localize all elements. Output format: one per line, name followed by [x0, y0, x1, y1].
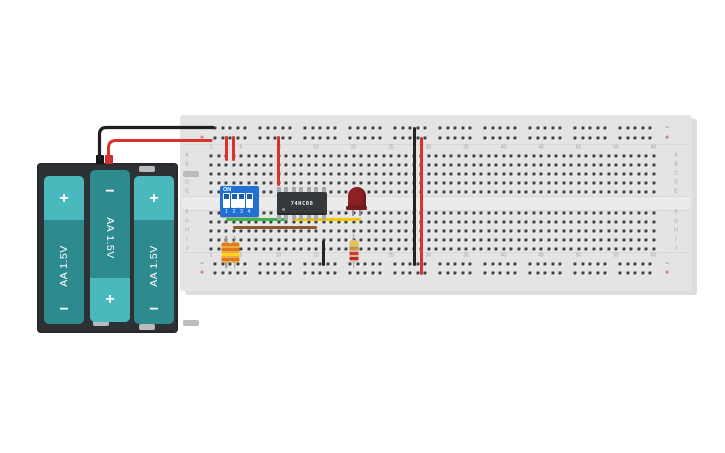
breadboard-hole[interactable] [469, 137, 472, 140]
breadboard-hole[interactable] [529, 137, 532, 140]
breadboard-hole[interactable] [379, 127, 382, 130]
breadboard-hole[interactable] [495, 155, 498, 158]
breadboard-hole[interactable] [349, 272, 352, 275]
breadboard-hole[interactable] [532, 212, 535, 215]
breadboard-hole[interactable] [311, 137, 314, 140]
breadboard-hole[interactable] [277, 248, 280, 251]
breadboard-hole[interactable] [562, 230, 565, 233]
breadboard-hole[interactable] [652, 212, 655, 215]
breadboard-hole[interactable] [544, 137, 547, 140]
breadboard-hole[interactable] [600, 221, 603, 224]
breadboard-hole[interactable] [499, 263, 502, 266]
breadboard-hole[interactable] [562, 182, 565, 185]
breadboard-hole[interactable] [375, 248, 378, 251]
breadboard-hole[interactable] [574, 263, 577, 266]
breadboard-hole[interactable] [570, 248, 573, 251]
breadboard-hole[interactable] [427, 239, 430, 242]
breadboard-hole[interactable] [390, 173, 393, 176]
breadboard-hole[interactable] [472, 164, 475, 167]
breadboard-hole[interactable] [307, 230, 310, 233]
breadboard-hole[interactable] [337, 248, 340, 251]
breadboard-hole[interactable] [397, 155, 400, 158]
breadboard-hole[interactable] [487, 248, 490, 251]
breadboard-hole[interactable] [364, 272, 367, 275]
jumper-brown-switch-to-ic[interactable] [233, 226, 317, 229]
breadboard-hole[interactable] [244, 263, 247, 266]
breadboard-hole[interactable] [592, 164, 595, 167]
breadboard-hole[interactable] [562, 212, 565, 215]
breadboard-hole[interactable] [506, 137, 509, 140]
breadboard-hole[interactable] [555, 248, 558, 251]
breadboard-hole[interactable] [409, 127, 412, 130]
breadboard-hole[interactable] [457, 230, 460, 233]
resistor-pulldown-2[interactable] [230, 236, 239, 268]
breadboard-hole[interactable] [427, 182, 430, 185]
breadboard-hole[interactable] [454, 272, 457, 275]
breadboard-hole[interactable] [517, 173, 520, 176]
breadboard-hole[interactable] [427, 221, 430, 224]
jumper-red-power-col3[interactable] [225, 136, 228, 161]
breadboard-hole[interactable] [581, 272, 584, 275]
breadboard-hole[interactable] [330, 248, 333, 251]
breadboard-hole[interactable] [217, 221, 220, 224]
breadboard-hole[interactable] [442, 221, 445, 224]
breadboard-hole[interactable] [600, 239, 603, 242]
breadboard-hole[interactable] [352, 173, 355, 176]
breadboard-hole[interactable] [465, 239, 468, 242]
breadboard-hole[interactable] [461, 263, 464, 266]
breadboard-hole[interactable] [600, 155, 603, 158]
breadboard-hole[interactable] [300, 230, 303, 233]
breadboard-hole[interactable] [547, 191, 550, 194]
breadboard-hole[interactable] [626, 137, 629, 140]
breadboard-hole[interactable] [589, 127, 592, 130]
breadboard-hole[interactable] [645, 230, 648, 233]
breadboard-hole[interactable] [266, 137, 269, 140]
breadboard-hole[interactable] [484, 263, 487, 266]
breadboard-hole[interactable] [390, 155, 393, 158]
breadboard-hole[interactable] [559, 127, 562, 130]
breadboard-hole[interactable] [600, 248, 603, 251]
breadboard-hole[interactable] [532, 164, 535, 167]
breadboard-hole[interactable] [247, 173, 250, 176]
breadboard-hole[interactable] [232, 164, 235, 167]
breadboard-hole[interactable] [547, 212, 550, 215]
breadboard-hole[interactable] [364, 263, 367, 266]
breadboard-hole[interactable] [375, 239, 378, 242]
breadboard-hole[interactable] [589, 263, 592, 266]
breadboard-hole[interactable] [514, 127, 517, 130]
breadboard-hole[interactable] [581, 137, 584, 140]
breadboard-hole[interactable] [281, 137, 284, 140]
breadboard-hole[interactable] [330, 164, 333, 167]
breadboard-hole[interactable] [450, 221, 453, 224]
breadboard-hole[interactable] [551, 137, 554, 140]
breadboard-hole[interactable] [604, 127, 607, 130]
breadboard-hole[interactable] [547, 230, 550, 233]
breadboard-hole[interactable] [645, 173, 648, 176]
breadboard-hole[interactable] [375, 173, 378, 176]
breadboard-hole[interactable] [371, 127, 374, 130]
breadboard-hole[interactable] [277, 239, 280, 242]
breadboard-hole[interactable] [390, 191, 393, 194]
breadboard-hole[interactable] [300, 173, 303, 176]
breadboard-hole[interactable] [285, 248, 288, 251]
breadboard-hole[interactable] [604, 272, 607, 275]
breadboard-hole[interactable] [450, 191, 453, 194]
breadboard-hole[interactable] [281, 127, 284, 130]
breadboard-hole[interactable] [495, 164, 498, 167]
breadboard-hole[interactable] [472, 230, 475, 233]
breadboard-hole[interactable] [300, 182, 303, 185]
breadboard-hole[interactable] [405, 191, 408, 194]
breadboard-hole[interactable] [514, 137, 517, 140]
breadboard-hole[interactable] [487, 182, 490, 185]
breadboard-hole[interactable] [472, 155, 475, 158]
breadboard-hole[interactable] [525, 221, 528, 224]
breadboard-hole[interactable] [315, 173, 318, 176]
rail-bridge-black[interactable] [413, 127, 416, 266]
breadboard-hole[interactable] [607, 155, 610, 158]
breadboard-hole[interactable] [472, 239, 475, 242]
breadboard-hole[interactable] [570, 164, 573, 167]
breadboard-hole[interactable] [225, 230, 228, 233]
breadboard-hole[interactable] [401, 137, 404, 140]
breadboard-hole[interactable] [634, 263, 637, 266]
breadboard-hole[interactable] [637, 230, 640, 233]
breadboard-hole[interactable] [622, 230, 625, 233]
breadboard-hole[interactable] [367, 191, 370, 194]
breadboard-hole[interactable] [495, 221, 498, 224]
breadboard-hole[interactable] [536, 137, 539, 140]
breadboard-hole[interactable] [394, 263, 397, 266]
breadboard-hole[interactable] [266, 127, 269, 130]
breadboard-hole[interactable] [484, 127, 487, 130]
breadboard-hole[interactable] [210, 173, 213, 176]
breadboard-hole[interactable] [236, 272, 239, 275]
breadboard-hole[interactable] [641, 127, 644, 130]
breadboard-hole[interactable] [596, 263, 599, 266]
breadboard-hole[interactable] [510, 212, 513, 215]
breadboard-hole[interactable] [446, 127, 449, 130]
breadboard-hole[interactable] [502, 230, 505, 233]
breadboard-hole[interactable] [244, 272, 247, 275]
breadboard-hole[interactable] [607, 182, 610, 185]
breadboard-hole[interactable] [570, 239, 573, 242]
breadboard-hole[interactable] [210, 182, 213, 185]
breadboard-hole[interactable] [652, 248, 655, 251]
breadboard-hole[interactable] [622, 164, 625, 167]
breadboard-hole[interactable] [607, 212, 610, 215]
breadboard-hole[interactable] [457, 191, 460, 194]
breadboard-hole[interactable] [540, 173, 543, 176]
breadboard-hole[interactable] [270, 239, 273, 242]
breadboard-hole[interactable] [457, 212, 460, 215]
breadboard-hole[interactable] [652, 182, 655, 185]
dip-switch-knob[interactable] [232, 199, 237, 207]
rail-bridge-red[interactable] [420, 137, 423, 275]
breadboard-hole[interactable] [424, 263, 427, 266]
breadboard-hole[interactable] [247, 239, 250, 242]
breadboard-hole[interactable] [626, 263, 629, 266]
breadboard-hole[interactable] [532, 230, 535, 233]
breadboard-hole[interactable] [356, 272, 359, 275]
breadboard-hole[interactable] [607, 248, 610, 251]
breadboard-hole[interactable] [360, 182, 363, 185]
breadboard-hole[interactable] [409, 137, 412, 140]
breadboard-hole[interactable] [285, 155, 288, 158]
breadboard-hole[interactable] [255, 182, 258, 185]
breadboard-hole[interactable] [555, 221, 558, 224]
breadboard-hole[interactable] [457, 239, 460, 242]
breadboard-hole[interactable] [487, 155, 490, 158]
breadboard-hole[interactable] [397, 182, 400, 185]
breadboard-hole[interactable] [214, 272, 217, 275]
breadboard-hole[interactable] [405, 182, 408, 185]
breadboard-hole[interactable] [604, 137, 607, 140]
breadboard-hole[interactable] [525, 164, 528, 167]
breadboard-hole[interactable] [480, 248, 483, 251]
breadboard-hole[interactable] [382, 212, 385, 215]
breadboard-hole[interactable] [607, 173, 610, 176]
breadboard-hole[interactable] [379, 272, 382, 275]
breadboard-hole[interactable] [502, 221, 505, 224]
breadboard-hole[interactable] [416, 272, 419, 275]
breadboard-hole[interactable] [562, 221, 565, 224]
breadboard-hole[interactable] [619, 127, 622, 130]
breadboard-hole[interactable] [352, 155, 355, 158]
breadboard-hole[interactable] [390, 164, 393, 167]
breadboard-hole[interactable] [427, 191, 430, 194]
breadboard-hole[interactable] [551, 263, 554, 266]
breadboard-hole[interactable] [641, 263, 644, 266]
breadboard-hole[interactable] [607, 191, 610, 194]
breadboard-hole[interactable] [401, 263, 404, 266]
breadboard-hole[interactable] [409, 263, 412, 266]
breadboard-hole[interactable] [480, 155, 483, 158]
breadboard-hole[interactable] [315, 164, 318, 167]
breadboard-hole[interactable] [450, 173, 453, 176]
breadboard-hole[interactable] [615, 155, 618, 158]
breadboard-hole[interactable] [270, 173, 273, 176]
breadboard-hole[interactable] [435, 164, 438, 167]
breadboard-hole[interactable] [300, 248, 303, 251]
breadboard-hole[interactable] [262, 164, 265, 167]
breadboard-hole[interactable] [270, 191, 273, 194]
breadboard-hole[interactable] [345, 164, 348, 167]
breadboard-hole[interactable] [585, 230, 588, 233]
breadboard-hole[interactable] [217, 248, 220, 251]
breadboard-hole[interactable] [630, 239, 633, 242]
breadboard-hole[interactable] [607, 221, 610, 224]
breadboard-hole[interactable] [465, 155, 468, 158]
breadboard-hole[interactable] [360, 173, 363, 176]
breadboard-hole[interactable] [592, 230, 595, 233]
breadboard-hole[interactable] [547, 155, 550, 158]
breadboard-hole[interactable] [446, 272, 449, 275]
breadboard-hole[interactable] [514, 263, 517, 266]
breadboard-hole[interactable] [262, 248, 265, 251]
breadboard-hole[interactable] [540, 221, 543, 224]
breadboard-hole[interactable] [435, 173, 438, 176]
breadboard-hole[interactable] [304, 263, 307, 266]
breadboard-hole[interactable] [637, 182, 640, 185]
breadboard-hole[interactable] [322, 230, 325, 233]
breadboard-hole[interactable] [544, 127, 547, 130]
breadboard-hole[interactable] [367, 173, 370, 176]
breadboard-hole[interactable] [232, 173, 235, 176]
jumper-red-ic-vcc[interactable] [277, 136, 280, 186]
breadboard-hole[interactable] [394, 272, 397, 275]
breadboard-hole[interactable] [435, 230, 438, 233]
breadboard-hole[interactable] [495, 248, 498, 251]
breadboard-hole[interactable] [547, 239, 550, 242]
breadboard-hole[interactable] [229, 127, 232, 130]
dip-switch-slider-1[interactable] [223, 193, 230, 208]
breadboard-hole[interactable] [469, 127, 472, 130]
breadboard-hole[interactable] [487, 191, 490, 194]
breadboard-hole[interactable] [450, 164, 453, 167]
breadboard-hole[interactable] [405, 164, 408, 167]
breadboard-hole[interactable] [315, 182, 318, 185]
breadboard-hole[interactable] [637, 173, 640, 176]
breadboard-hole[interactable] [435, 182, 438, 185]
breadboard-hole[interactable] [525, 212, 528, 215]
breadboard-hole[interactable] [240, 248, 243, 251]
breadboard-hole[interactable] [334, 272, 337, 275]
breadboard-hole[interactable] [465, 191, 468, 194]
breadboard-hole[interactable] [495, 212, 498, 215]
breadboard-hole[interactable] [581, 127, 584, 130]
breadboard-hole[interactable] [592, 191, 595, 194]
breadboard-hole[interactable] [491, 127, 494, 130]
breadboard-hole[interactable] [577, 248, 580, 251]
breadboard-hole[interactable] [630, 248, 633, 251]
breadboard-hole[interactable] [585, 248, 588, 251]
breadboard-hole[interactable] [270, 248, 273, 251]
breadboard-hole[interactable] [450, 239, 453, 242]
breadboard-hole[interactable] [315, 239, 318, 242]
breadboard-hole[interactable] [427, 155, 430, 158]
breadboard-hole[interactable] [427, 164, 430, 167]
breadboard-hole[interactable] [480, 164, 483, 167]
breadboard-hole[interactable] [352, 230, 355, 233]
breadboard-hole[interactable] [427, 230, 430, 233]
breadboard-hole[interactable] [255, 230, 258, 233]
breadboard-hole[interactable] [600, 182, 603, 185]
breadboard-hole[interactable] [495, 191, 498, 194]
breadboard-hole[interactable] [375, 221, 378, 224]
breadboard-hole[interactable] [405, 239, 408, 242]
breadboard-hole[interactable] [544, 272, 547, 275]
breadboard-hole[interactable] [326, 127, 329, 130]
breadboard-hole[interactable] [555, 182, 558, 185]
breadboard-hole[interactable] [292, 239, 295, 242]
breadboard-hole[interactable] [585, 239, 588, 242]
breadboard-hole[interactable] [442, 212, 445, 215]
breadboard-hole[interactable] [292, 248, 295, 251]
breadboard-hole[interactable] [592, 155, 595, 158]
breadboard-hole[interactable] [225, 164, 228, 167]
breadboard-hole[interactable] [472, 248, 475, 251]
breadboard-hole[interactable] [390, 230, 393, 233]
breadboard-hole[interactable] [270, 155, 273, 158]
breadboard-hole[interactable] [240, 239, 243, 242]
breadboard-hole[interactable] [502, 173, 505, 176]
breadboard-hole[interactable] [592, 173, 595, 176]
breadboard-hole[interactable] [319, 272, 322, 275]
breadboard-hole[interactable] [506, 127, 509, 130]
breadboard-hole[interactable] [637, 248, 640, 251]
breadboard-hole[interactable] [397, 239, 400, 242]
breadboard-hole[interactable] [540, 230, 543, 233]
breadboard-hole[interactable] [405, 212, 408, 215]
breadboard-hole[interactable] [405, 230, 408, 233]
breadboard-hole[interactable] [304, 272, 307, 275]
breadboard-hole[interactable] [555, 191, 558, 194]
breadboard-hole[interactable] [457, 164, 460, 167]
breadboard-hole[interactable] [551, 127, 554, 130]
breadboard-hole[interactable] [326, 137, 329, 140]
breadboard-hole[interactable] [349, 127, 352, 130]
breadboard-hole[interactable] [266, 272, 269, 275]
breadboard-hole[interactable] [465, 182, 468, 185]
breadboard-hole[interactable] [450, 182, 453, 185]
breadboard-hole[interactable] [247, 182, 250, 185]
breadboard-hole[interactable] [379, 263, 382, 266]
breadboard-hole[interactable] [502, 182, 505, 185]
breadboard-hole[interactable] [439, 263, 442, 266]
breadboard-hole[interactable] [217, 239, 220, 242]
breadboard-hole[interactable] [562, 248, 565, 251]
breadboard-hole[interactable] [319, 137, 322, 140]
breadboard-hole[interactable] [416, 127, 419, 130]
breadboard-hole[interactable] [397, 173, 400, 176]
breadboard-hole[interactable] [356, 137, 359, 140]
breadboard-hole[interactable] [304, 137, 307, 140]
breadboard-hole[interactable] [382, 221, 385, 224]
breadboard-hole[interactable] [307, 155, 310, 158]
breadboard-hole[interactable] [210, 248, 213, 251]
breadboard-hole[interactable] [637, 239, 640, 242]
breadboard-hole[interactable] [367, 182, 370, 185]
breadboard-hole[interactable] [532, 221, 535, 224]
breadboard-hole[interactable] [547, 164, 550, 167]
breadboard-hole[interactable] [506, 263, 509, 266]
breadboard-hole[interactable] [397, 230, 400, 233]
breadboard-hole[interactable] [630, 221, 633, 224]
breadboard-hole[interactable] [217, 230, 220, 233]
breadboard-hole[interactable] [289, 263, 292, 266]
breadboard-hole[interactable] [547, 221, 550, 224]
breadboard-hole[interactable] [645, 164, 648, 167]
breadboard-hole[interactable] [532, 155, 535, 158]
breadboard-hole[interactable] [397, 212, 400, 215]
breadboard-hole[interactable] [232, 182, 235, 185]
breadboard-hole[interactable] [352, 182, 355, 185]
breadboard-hole[interactable] [364, 127, 367, 130]
breadboard-hole[interactable] [379, 137, 382, 140]
breadboard-hole[interactable] [307, 164, 310, 167]
breadboard-hole[interactable] [360, 164, 363, 167]
breadboard-hole[interactable] [274, 263, 277, 266]
breadboard-hole[interactable] [457, 221, 460, 224]
breadboard-hole[interactable] [600, 164, 603, 167]
breadboard-hole[interactable] [540, 239, 543, 242]
breadboard-hole[interactable] [502, 239, 505, 242]
breadboard-hole[interactable] [330, 173, 333, 176]
breadboard-hole[interactable] [589, 137, 592, 140]
